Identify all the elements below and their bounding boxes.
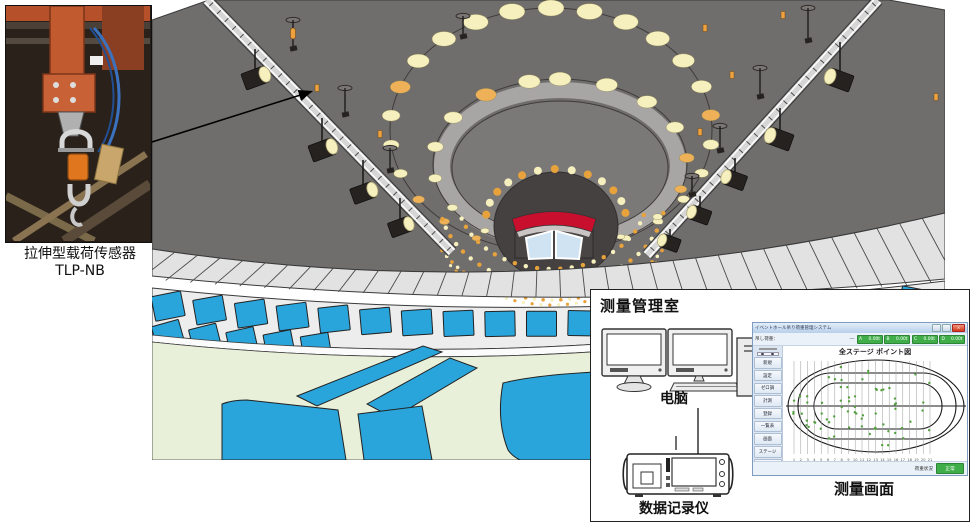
measurement-point (826, 418, 828, 420)
outer-ring-light (646, 31, 670, 46)
plot-x-label: 18 (907, 458, 912, 462)
recorder-knob (720, 472, 725, 477)
measurement-point (828, 376, 830, 378)
recorder-knob (720, 460, 725, 465)
measurement-point (895, 402, 897, 404)
outer-ring-light (394, 169, 408, 178)
measurement-point (921, 409, 923, 411)
dot-light (628, 258, 632, 262)
measurement-point (875, 412, 877, 414)
recorder-slot (641, 472, 653, 484)
inner-ring-light (568, 166, 576, 174)
seat-section (318, 305, 351, 333)
plot-x-label: 8 (840, 458, 843, 462)
measurement-room-box: 测量管理室 电脑 (590, 289, 970, 522)
load-sensor-marker (934, 94, 938, 101)
middle-ring-light (481, 228, 489, 233)
measurement-point (793, 399, 795, 401)
measurement-point (821, 412, 823, 414)
outer-ring-light (538, 0, 564, 16)
dot-light (533, 297, 537, 301)
recorder-foot (635, 494, 643, 497)
plot-x-label: 4 (813, 458, 816, 462)
photo-caption: 拉伸型载荷传感器 TLP-NB (0, 246, 160, 280)
measurement-point (805, 424, 807, 426)
sensor-photo (5, 5, 152, 243)
dot-light (440, 217, 444, 221)
software-sidebar: 新規設定ゼロ調計測登録一覧表画面ステージ終了 (753, 346, 783, 461)
control-booth (512, 212, 596, 260)
channel-readout: C0.00t (912, 335, 938, 344)
plot-x-label: 7 (834, 458, 836, 462)
plot-x-label: 17 (901, 458, 906, 462)
recorder-drawing (619, 452, 737, 500)
software-window: イベントホール吊り荷重管理システム × 吊し荷重： — A0.00tB0.00t… (752, 322, 968, 476)
measurement-point (828, 437, 830, 439)
computers-drawing (596, 324, 766, 450)
dot-light (627, 237, 631, 241)
inner-ring-light (493, 188, 501, 196)
software-main: 新規設定ゼロ調計測登録一覧表画面ステージ終了 全ステージ ポイント図 12345… (753, 346, 967, 461)
recorder-knob (720, 482, 725, 487)
photo-bolt (53, 97, 59, 103)
seat-section (276, 302, 309, 331)
sidebar-button-6[interactable]: 一覧表 (754, 421, 782, 433)
measurement-point (854, 411, 856, 413)
middle-ring-light (476, 88, 497, 101)
monitor-left-buttons (610, 368, 628, 372)
outer-ring-light (432, 32, 456, 47)
dot-light (454, 242, 458, 246)
dot-light (502, 257, 506, 261)
dot-light (581, 263, 585, 267)
inner-ring-light (486, 199, 494, 207)
dot-light (484, 246, 488, 250)
seat-section (193, 295, 227, 325)
dot-light (448, 234, 452, 238)
measurement-point (792, 411, 794, 413)
measurement-point (902, 437, 904, 439)
plot-x-label: 11 (860, 458, 865, 462)
measurement-point (840, 386, 842, 388)
load-sensor-marker (698, 129, 702, 136)
monitor-left-led (658, 368, 661, 371)
recorder-button (666, 476, 670, 480)
outer-ring-light (577, 4, 603, 20)
dot-light (611, 250, 615, 254)
measurement-point (807, 426, 809, 428)
seat-section (234, 299, 267, 328)
dot-light (591, 259, 595, 263)
plot-x-label: 16 (894, 458, 899, 462)
measurement-point (854, 406, 856, 408)
measurement-point (821, 402, 823, 404)
hanging-light (291, 28, 296, 39)
plot-x-label: 9 (847, 458, 850, 462)
measurement-point (869, 433, 871, 435)
channel-readout: A0.00t (857, 335, 883, 344)
measurement-point (861, 425, 863, 427)
measurement-point (928, 429, 930, 431)
measurement-point (861, 378, 863, 380)
sidebar-button-2[interactable]: 設定 (754, 370, 782, 382)
inner-ring-light (534, 167, 542, 175)
floor-seating-block (358, 406, 432, 460)
measurement-point (901, 427, 903, 429)
recorder-screen (672, 458, 716, 486)
measurement-point (862, 414, 864, 416)
outer-ring-light (499, 4, 525, 20)
photo-load-cell (68, 154, 88, 180)
dot-light (658, 220, 662, 224)
middle-ring-light (427, 142, 443, 152)
dot-light (557, 303, 560, 306)
measurement-point (806, 401, 808, 403)
recorder-strip (666, 458, 670, 472)
middle-ring-light (429, 174, 442, 182)
dot-light (566, 303, 569, 306)
plot-x-label: 14 (880, 458, 885, 462)
measurement-point (894, 408, 896, 410)
inner-ring-light (482, 211, 490, 219)
screen-label: 测量画面 (799, 478, 929, 499)
measurement-point (881, 444, 883, 446)
measurement-point (887, 430, 889, 432)
outer-ring-light (413, 196, 425, 203)
dot-light (535, 266, 539, 270)
inner-ring-light (621, 209, 629, 217)
dot-light (638, 221, 642, 225)
recorder-foot (713, 494, 721, 497)
plot-x-label: 12 (867, 458, 872, 462)
recorder-label: 数据记录仪 (609, 498, 739, 518)
recorder-tray (675, 488, 689, 491)
sidebar-button-8[interactable]: ステージ (754, 446, 782, 458)
plot-x-label: 21 (928, 458, 933, 462)
inner-ring-light (617, 197, 625, 205)
measurement-point (894, 432, 896, 434)
measurement-point (922, 401, 924, 403)
load-sensor-marker (378, 131, 382, 138)
load-sensor-marker (703, 25, 707, 32)
measurement-point (813, 421, 815, 423)
dot-light (513, 299, 516, 302)
outer-ring-light (691, 80, 711, 93)
measurement-point (846, 386, 848, 388)
software-plot-area: 全ステージ ポイント図 1234567891011121314151617181… (783, 346, 967, 461)
dot-light (602, 255, 606, 259)
recorder-tray (693, 488, 703, 491)
photo-label-tag (90, 56, 103, 65)
seat-section (401, 309, 433, 336)
dot-light (575, 302, 578, 305)
dot-light (550, 298, 554, 302)
middle-ring-light (444, 112, 463, 124)
middle-ring-light (617, 234, 625, 239)
middle-ring-light (653, 214, 663, 220)
measurement-point (841, 406, 843, 408)
measurement-point (801, 413, 803, 415)
photo-plate (43, 74, 95, 112)
dot-light (655, 228, 659, 232)
monitor-right-led (724, 368, 727, 371)
sidebar-button-5[interactable]: 登録 (754, 408, 782, 420)
measurement-point (848, 396, 850, 398)
inner-ring-light (518, 171, 526, 179)
inner-ring-light (584, 170, 592, 178)
channel-readout: B0.00t (884, 335, 910, 344)
outer-ring-light (472, 235, 481, 241)
measurement-point (874, 427, 876, 429)
photo-caption-line1: 拉伸型载荷传感器 (0, 246, 160, 263)
channel-readouts: A0.00tB0.00tC0.00tD0.00t (857, 335, 966, 344)
software-titlebar[interactable]: イベントホール吊り荷重管理システム × (753, 323, 967, 333)
dot-light (642, 213, 646, 217)
plot-x-label: 19 (914, 458, 919, 462)
plot-x-label: 13 (873, 458, 878, 462)
load-sensor-marker (781, 12, 785, 19)
seat-section (526, 311, 556, 336)
sidebar-button-3[interactable]: ゼロ調 (754, 383, 782, 395)
dot-light (633, 229, 637, 233)
measurement-point (847, 410, 849, 412)
middle-ring-light (596, 78, 617, 91)
dot-light (476, 240, 480, 244)
dot-light (461, 249, 465, 253)
middle-ring-light (447, 204, 458, 211)
dot-light (464, 225, 468, 229)
inner-ring-light (598, 177, 606, 185)
plot-x-label: 6 (827, 458, 830, 462)
middle-ring-light (637, 96, 657, 108)
stage-point-plot: 123456789101112131415161718192021 (784, 357, 968, 467)
dot-light (493, 252, 497, 256)
inner-ring-light (504, 178, 512, 186)
floor-seating-block (222, 400, 346, 460)
measurement-point (806, 419, 808, 421)
page: 拉伸型载荷传感器 TLP-NB 测量管理室 电脑 (0, 0, 973, 524)
outer-ring-light (613, 14, 638, 29)
load-label: 吊し荷重： (755, 336, 778, 342)
plot-x-label: 5 (820, 458, 822, 462)
software-title: イベントホール吊り荷重管理システム (755, 325, 931, 331)
dot-light (636, 252, 640, 256)
inner-ring-light (551, 165, 559, 173)
sidebar-buttons: 新規設定ゼロ調計測登録一覧表画面ステージ終了 (753, 356, 782, 470)
dot-light (548, 303, 551, 306)
dot-light (449, 264, 452, 267)
minimize-button-icon[interactable] (932, 324, 941, 332)
photo-bolt (70, 82, 76, 88)
dot-light (444, 226, 448, 230)
dot-light (477, 262, 481, 266)
plot-x-label: 2 (800, 458, 802, 462)
dot-light (541, 298, 545, 302)
outer-ring-light (672, 54, 694, 68)
middle-ring-light (666, 122, 684, 133)
measurement-point (848, 400, 850, 402)
dot-light (450, 260, 454, 264)
seat-section (443, 310, 474, 336)
inner-ring-light (609, 186, 617, 194)
sidebar-button-4[interactable]: 計測 (754, 395, 782, 407)
measurement-point (861, 417, 863, 419)
seat-section (152, 291, 185, 321)
middle-ring-light (675, 185, 687, 193)
sidebar-button-1[interactable]: 新規 (754, 357, 782, 369)
monitor-right-buttons (676, 368, 694, 372)
plot-x-label: 10 (853, 458, 858, 462)
dot-light (655, 255, 659, 259)
load-sensor-marker (730, 72, 734, 79)
dot-light (619, 244, 623, 248)
measurement-point (840, 379, 842, 381)
middle-ring-light (679, 153, 694, 162)
plot-title: 全ステージ ポイント図 (783, 347, 967, 357)
measurement-point (833, 415, 835, 417)
measurement-point (854, 395, 856, 397)
room-title: 测量管理室 (600, 295, 680, 316)
software-toolbar: 吊し荷重： — A0.00tB0.00tC0.00tD0.00t (753, 333, 967, 346)
monitor-left-screen (607, 334, 661, 365)
dot-light (583, 300, 586, 303)
measurement-point (882, 388, 884, 390)
plot-x-label: 20 (921, 458, 926, 462)
measurement-point (928, 382, 930, 384)
photo-bolt (53, 82, 59, 88)
dot-light (539, 303, 542, 306)
dot-light (661, 211, 665, 215)
plot-x-label: 1 (793, 458, 795, 462)
seat-section (360, 307, 392, 335)
measurement-point (799, 395, 801, 397)
measurement-point (867, 370, 869, 372)
measurement-point (875, 388, 877, 390)
monitor-right-neck (694, 376, 704, 381)
channel-readout: D0.00t (939, 335, 965, 344)
measurement-point (806, 395, 808, 397)
outer-ring-light (703, 140, 719, 150)
load-sensor-marker (315, 85, 319, 92)
dot-light (568, 297, 572, 301)
sensor-photo-drawing (6, 6, 150, 241)
sidebar-button-7[interactable]: 画面 (754, 433, 782, 445)
load-dash: — (850, 336, 855, 342)
dot-light (456, 265, 460, 269)
dot-light (469, 256, 473, 260)
dot-light (513, 261, 517, 265)
photo-caption-line2: TLP-NB (0, 263, 160, 280)
outer-ring-light (702, 110, 720, 121)
dot-light (469, 232, 473, 236)
connector-svg (696, 408, 700, 454)
alarm-indicator (759, 348, 777, 350)
measurement-point (894, 397, 896, 399)
dot-light (459, 216, 463, 220)
measurement-point (914, 373, 916, 375)
measurement-point (882, 423, 884, 425)
plot-x-label: 15 (887, 458, 892, 462)
dot-light (559, 298, 563, 302)
photo-bolt (70, 97, 76, 103)
dot-light (531, 302, 534, 305)
monitor-right-screen (673, 334, 727, 365)
computer-label: 电脑 (639, 388, 709, 408)
outer-ring-light (390, 81, 410, 94)
measurement-point (834, 378, 836, 380)
dot-light (660, 249, 664, 253)
measurement-point (840, 366, 842, 368)
outer-ring-light (407, 54, 429, 68)
measurement-point (888, 387, 890, 389)
seat-section (485, 311, 516, 337)
measurement-point (848, 426, 850, 428)
maximize-button-icon[interactable] (942, 324, 951, 332)
measurement-point (833, 435, 835, 437)
dot-light (524, 264, 528, 268)
measurement-point (828, 421, 830, 423)
recorder-button (666, 483, 670, 487)
middle-ring-light (549, 72, 571, 86)
measurement-point (909, 421, 911, 423)
plot-x-label: 3 (806, 458, 808, 462)
close-button-icon[interactable]: × (952, 324, 965, 332)
measurement-point (840, 399, 842, 401)
middle-ring-light (518, 75, 540, 89)
measurement-point (887, 444, 889, 446)
measurement-point (820, 428, 822, 430)
dot-light (522, 301, 525, 304)
outer-ring-light (382, 110, 400, 121)
